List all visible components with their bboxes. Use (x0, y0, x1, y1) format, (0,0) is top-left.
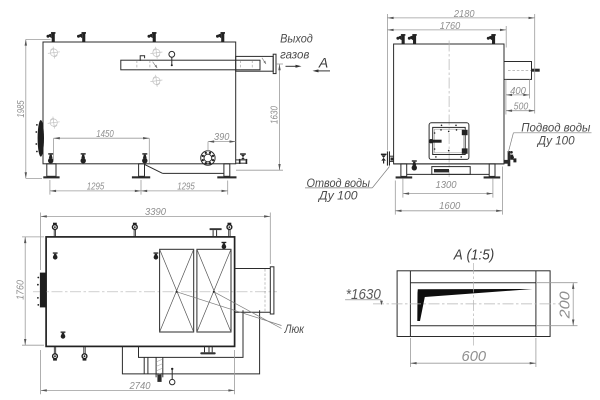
svg-text:1985: 1985 (16, 100, 27, 118)
svg-text:1760: 1760 (16, 280, 27, 300)
svg-text:2180: 2180 (453, 9, 475, 20)
svg-text:3390: 3390 (145, 207, 166, 218)
svg-text:1760: 1760 (440, 21, 461, 32)
svg-text:600: 600 (462, 348, 487, 365)
svg-text:1295: 1295 (177, 182, 195, 193)
svg-text:А: А (318, 55, 328, 71)
svg-text:2740: 2740 (129, 381, 151, 392)
svg-text:1450: 1450 (96, 129, 114, 140)
svg-text:Люк: Люк (284, 322, 305, 336)
svg-text:1630: 1630 (269, 106, 280, 124)
svg-text:200: 200 (557, 291, 574, 320)
svg-text:Выход: Выход (280, 32, 313, 46)
svg-text:газов: газов (280, 48, 309, 62)
svg-text:*1630: *1630 (346, 287, 381, 303)
svg-text:500: 500 (514, 102, 529, 113)
svg-text:Ду 100: Ду 100 (317, 188, 358, 202)
svg-text:А (1:5): А (1:5) (453, 248, 494, 264)
svg-text:400: 400 (510, 86, 526, 97)
svg-text:Подвод воды: Подвод воды (521, 121, 590, 135)
svg-text:Ду 100: Ду 100 (536, 134, 575, 148)
svg-text:1295: 1295 (87, 182, 105, 193)
svg-text:1300: 1300 (435, 180, 457, 191)
svg-text:390: 390 (214, 132, 230, 143)
svg-text:1600: 1600 (439, 201, 461, 212)
